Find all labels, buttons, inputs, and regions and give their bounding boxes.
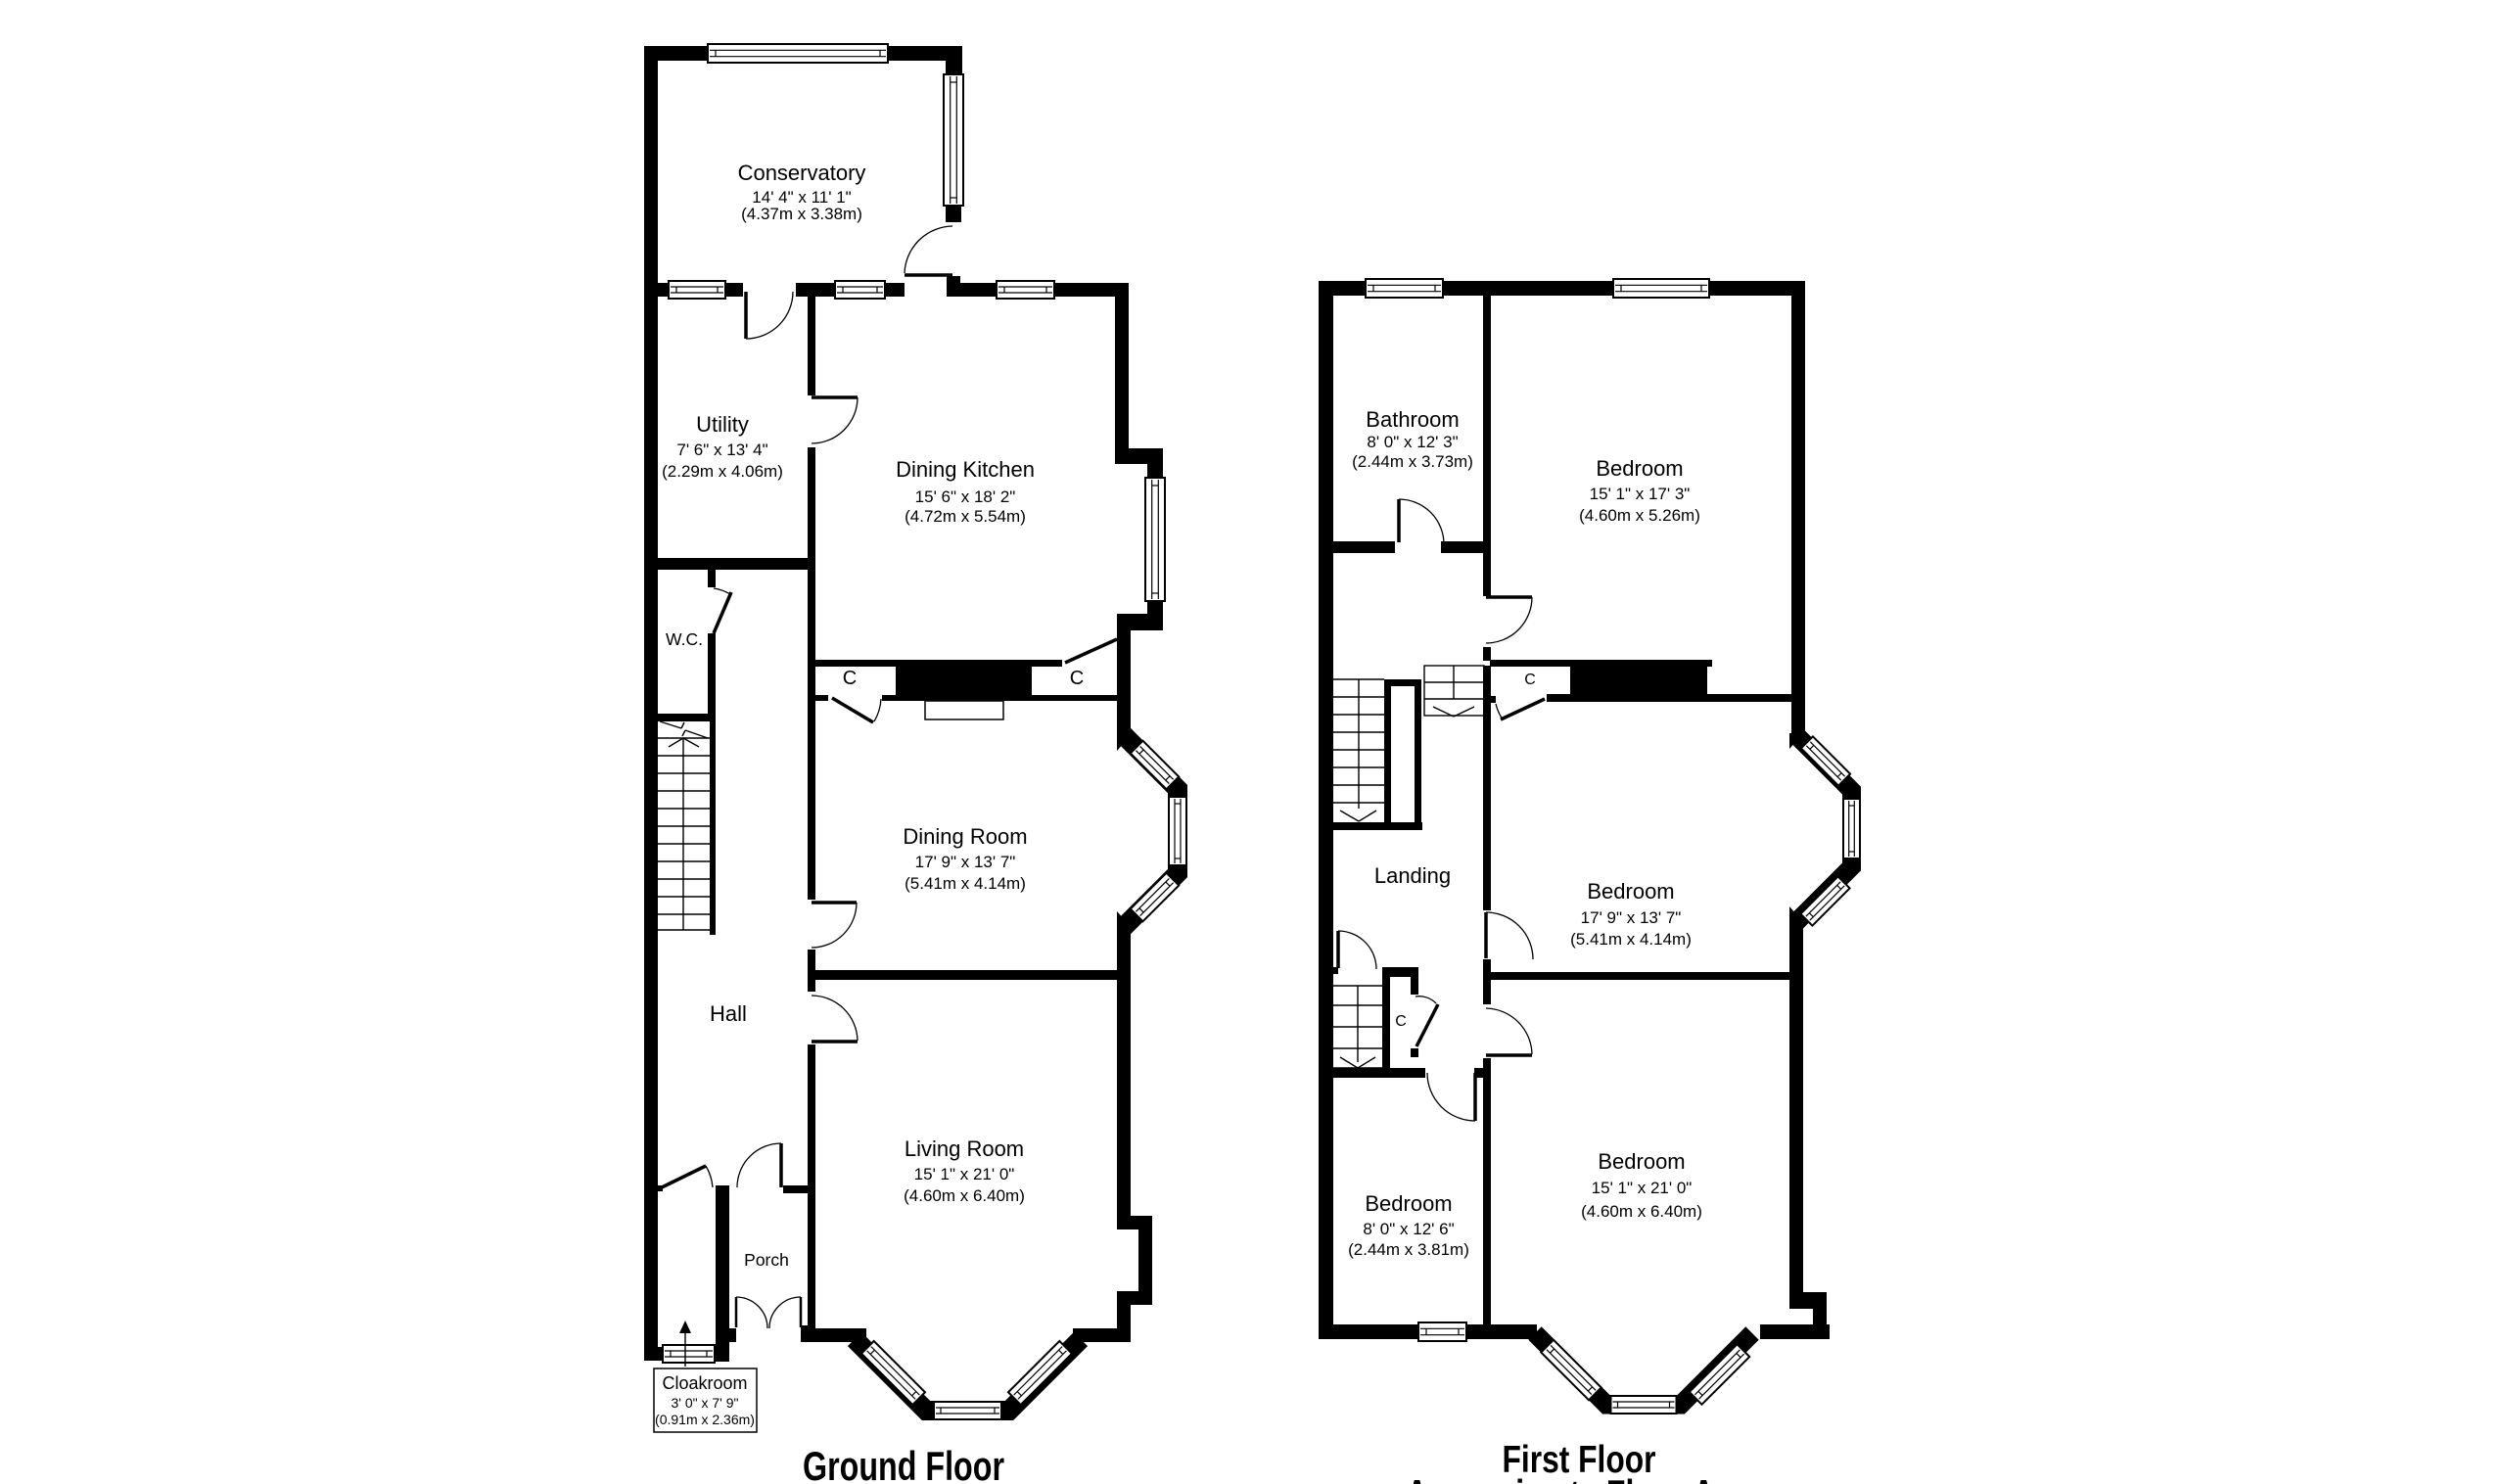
svg-text:(4.60m x 6.40m): (4.60m x 6.40m) [1581, 1202, 1702, 1221]
svg-text:8' 0" x 12' 3": 8' 0" x 12' 3" [1367, 433, 1458, 451]
svg-text:(2.44m x 3.81m): (2.44m x 3.81m) [1348, 1240, 1469, 1259]
svg-text:Hall: Hall [710, 1001, 747, 1026]
svg-text:W.C.: W.C. [666, 629, 703, 649]
svg-text:C: C [1524, 672, 1536, 688]
svg-text:8' 0" x 12' 6": 8' 0" x 12' 6" [1363, 1220, 1454, 1238]
svg-text:Utility: Utility [696, 412, 749, 437]
svg-text:Bedroom: Bedroom [1598, 1149, 1685, 1174]
svg-text:(0.91m x 2.36m): (0.91m x 2.36m) [655, 1412, 755, 1427]
svg-text:(2.44m x 3.73m): (2.44m x 3.73m) [1352, 452, 1473, 471]
svg-text:Approximate Floor Area: Approximate Floor Area [1406, 1471, 1762, 1484]
svg-text:C: C [843, 668, 857, 689]
svg-text:(4.72m x 5.54m): (4.72m x 5.54m) [905, 507, 1026, 526]
svg-text:15' 1" x 21' 0": 15' 1" x 21' 0" [1592, 1179, 1693, 1197]
svg-text:17' 9" x 13' 7": 17' 9" x 13' 7" [1581, 908, 1682, 927]
svg-text:Landing: Landing [1374, 863, 1451, 888]
svg-text:Ground Floor: Ground Floor [803, 1443, 1004, 1484]
svg-text:Living Room: Living Room [905, 1136, 1024, 1161]
svg-text:Bathroom: Bathroom [1366, 407, 1459, 432]
svg-text:15' 6" x 18' 2": 15' 6" x 18' 2" [915, 487, 1016, 506]
svg-text:(5.41m x 4.14m): (5.41m x 4.14m) [905, 874, 1026, 893]
svg-text:17' 9" x 13' 7": 17' 9" x 13' 7" [915, 853, 1016, 871]
svg-text:C: C [1395, 1013, 1407, 1030]
svg-text:Bedroom: Bedroom [1365, 1191, 1452, 1216]
svg-text:Porch: Porch [744, 1250, 789, 1270]
svg-text:7' 6" x 13' 4": 7' 6" x 13' 4" [676, 441, 767, 459]
svg-text:Cloakroom: Cloakroom [662, 1373, 747, 1393]
svg-text:Bedroom: Bedroom [1596, 456, 1683, 481]
svg-text:15' 1" x 21' 0": 15' 1" x 21' 0" [914, 1165, 1015, 1183]
svg-text:(2.29m x 4.06m): (2.29m x 4.06m) [662, 462, 783, 481]
svg-text:(4.37m x 3.38m): (4.37m x 3.38m) [741, 205, 862, 223]
svg-text:Dining Room: Dining Room [903, 824, 1027, 849]
svg-text:Conservatory: Conservatory [738, 161, 866, 185]
svg-text:(5.41m x 4.14m): (5.41m x 4.14m) [1570, 930, 1692, 949]
svg-text:C: C [1070, 668, 1084, 689]
svg-text:Dining Kitchen: Dining Kitchen [896, 457, 1035, 482]
svg-text:Bedroom: Bedroom [1587, 879, 1674, 904]
svg-text:15' 1" x 17' 3": 15' 1" x 17' 3" [1590, 485, 1691, 503]
svg-text:(4.60m x 5.26m): (4.60m x 5.26m) [1579, 506, 1700, 525]
svg-text:(4.60m x 6.40m): (4.60m x 6.40m) [904, 1186, 1025, 1205]
svg-text:3' 0" x 7' 9": 3' 0" x 7' 9" [672, 1395, 739, 1411]
